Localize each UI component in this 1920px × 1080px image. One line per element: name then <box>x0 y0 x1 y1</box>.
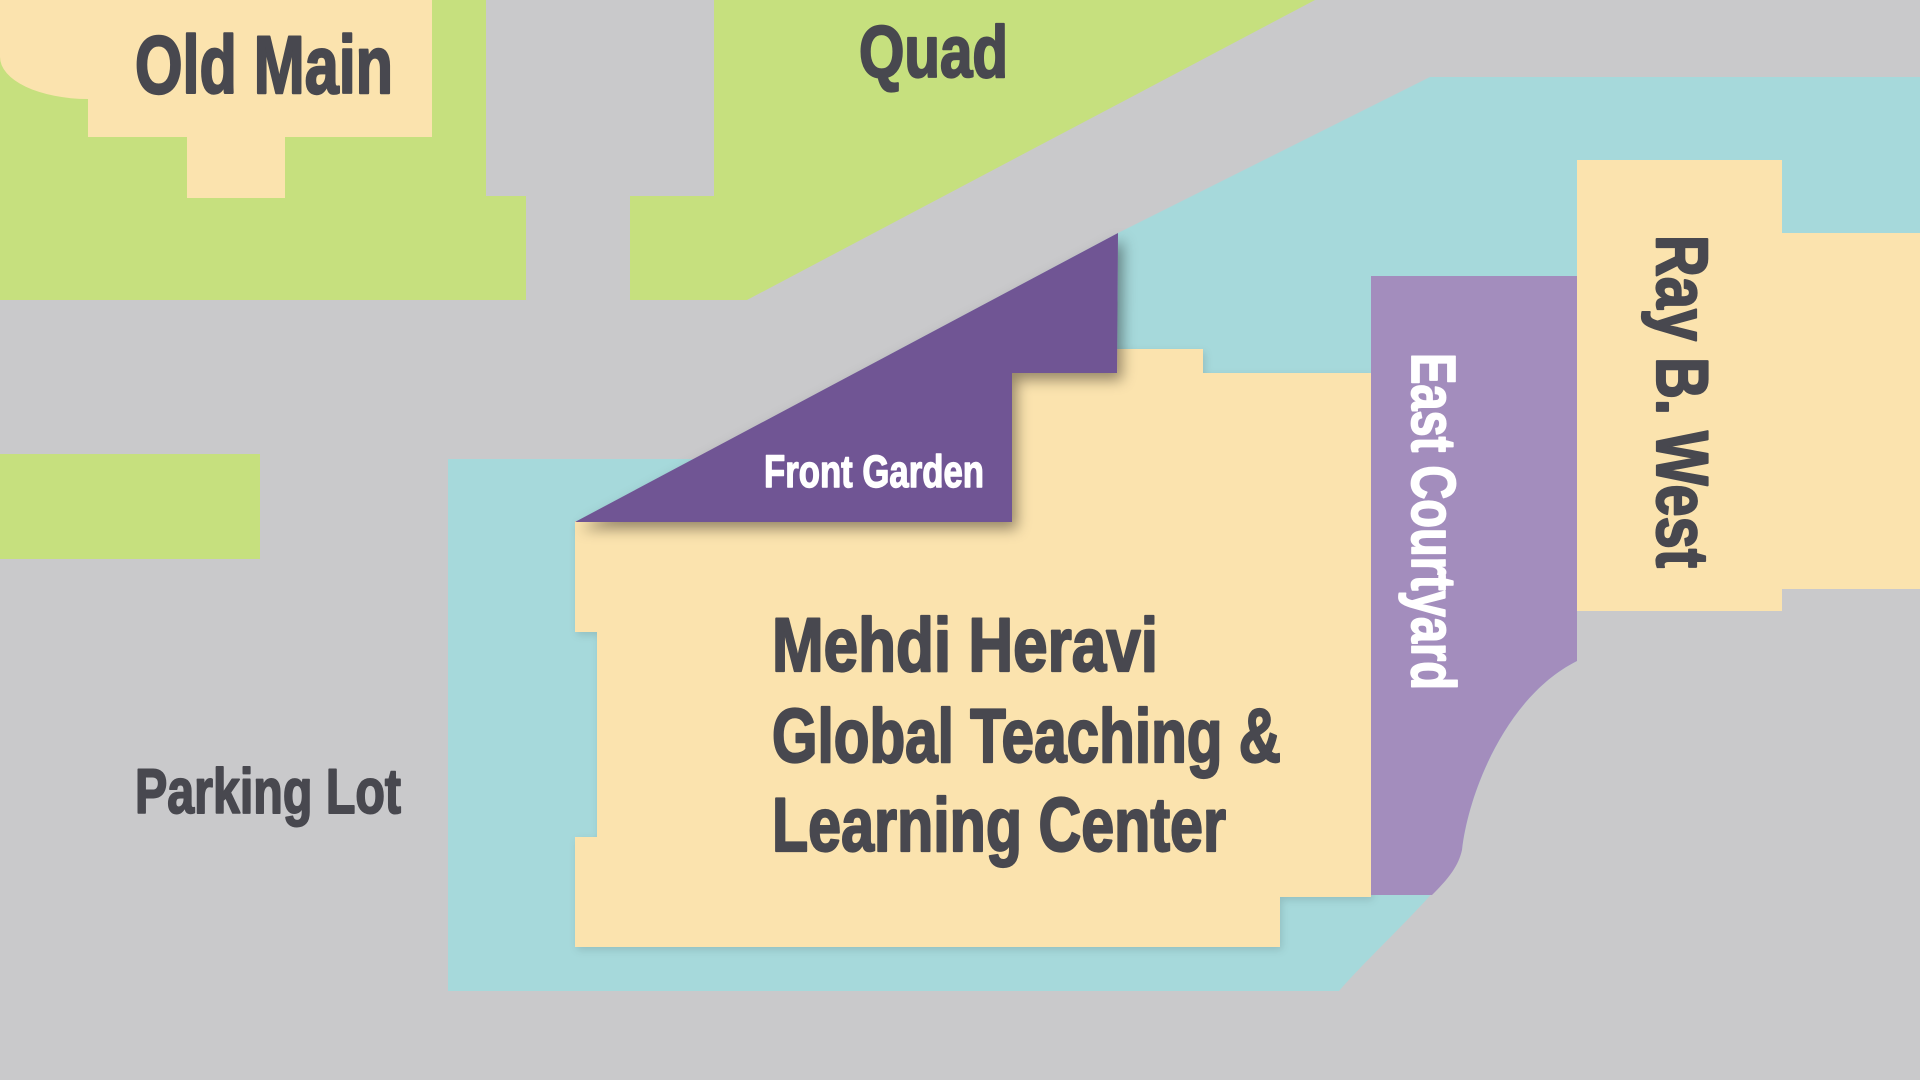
svg-text:Ray B. West: Ray B. West <box>1641 235 1722 568</box>
svg-text:East Courtyard: East Courtyard <box>1398 353 1467 690</box>
svg-text:Quad: Quad <box>859 12 1008 93</box>
svg-text:Front Garden: Front Garden <box>764 446 984 497</box>
svg-text:Learning Center: Learning Center <box>772 783 1226 868</box>
svg-text:Mehdi Heravi: Mehdi Heravi <box>772 603 1158 688</box>
svg-text:Parking Lot: Parking Lot <box>135 757 401 827</box>
svg-text:Global Teaching &: Global Teaching & <box>772 694 1281 779</box>
svg-text:Old Main: Old Main <box>135 20 393 111</box>
